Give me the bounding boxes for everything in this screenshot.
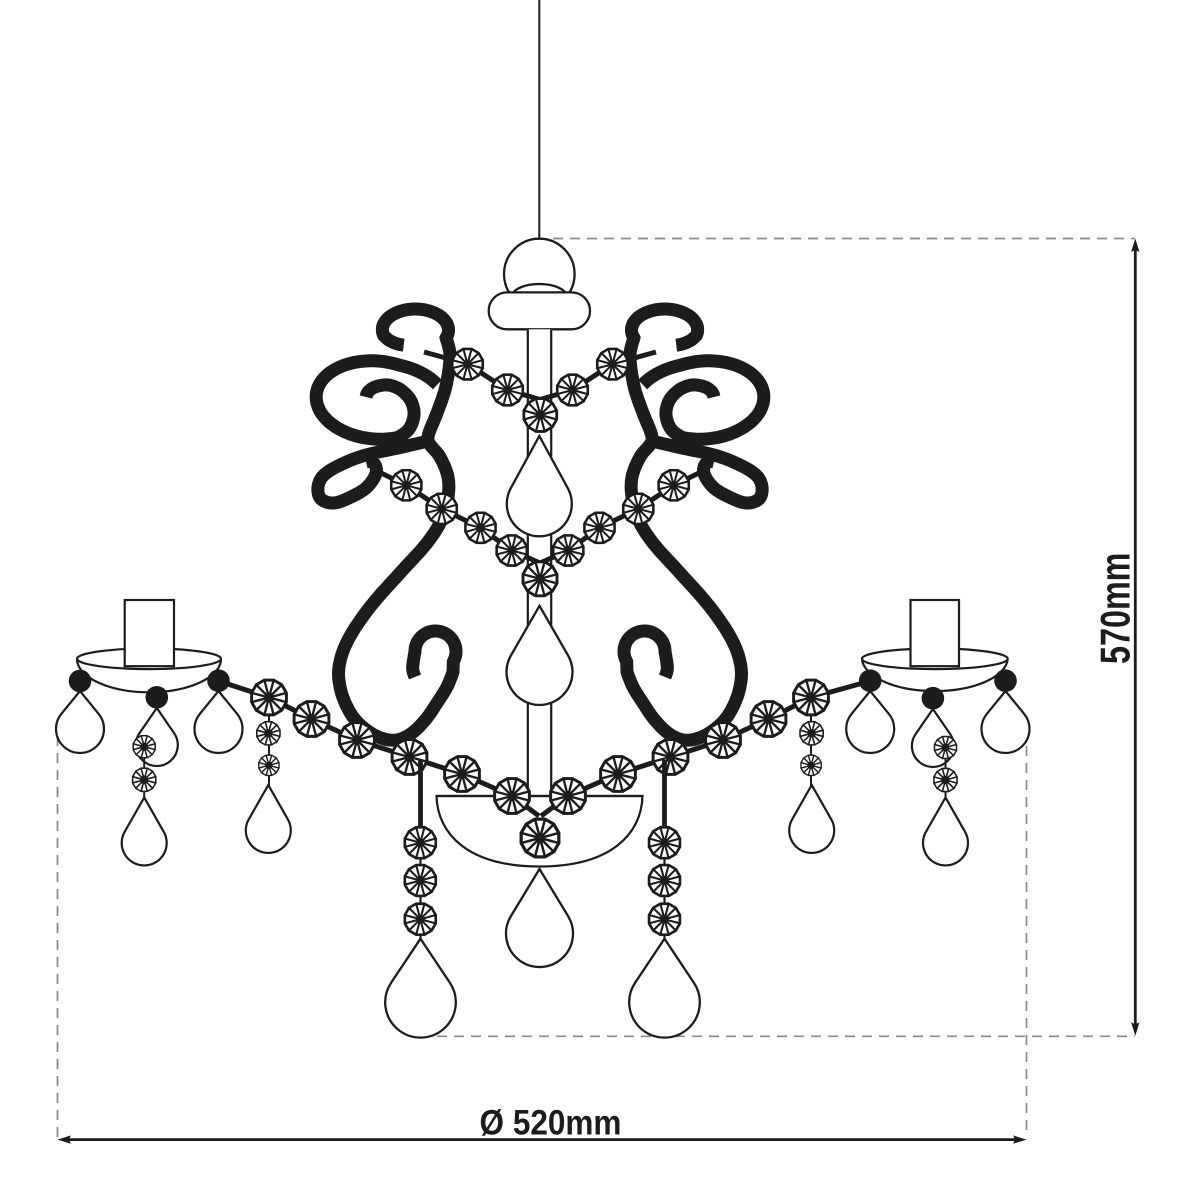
svg-text:570mm: 570mm	[1091, 553, 1138, 664]
svg-text:Ø 520mm: Ø 520mm	[480, 1104, 622, 1143]
